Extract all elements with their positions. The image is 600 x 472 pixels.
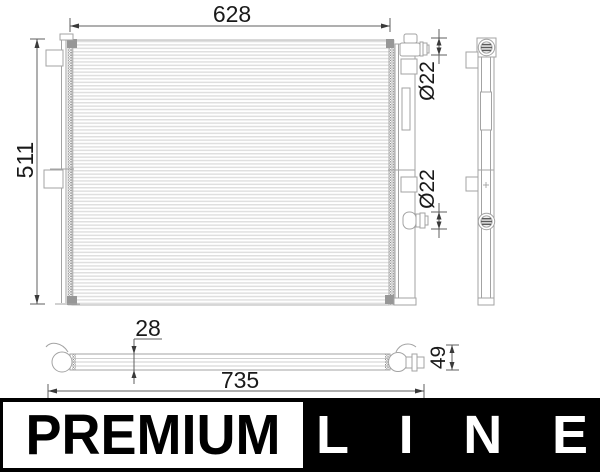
front-view: [44, 34, 429, 305]
line-letter-n: N: [463, 408, 502, 462]
line-label: L I N E: [316, 398, 588, 472]
core-right-edge: [389, 40, 394, 305]
dim-end-height-label: 49: [427, 346, 450, 369]
dim-front-height-label: 511: [12, 142, 38, 179]
mounting-bracket-mid-left: [44, 170, 63, 188]
mounting-bracket-mid-right: [401, 177, 417, 192]
side-bracket-upper: [466, 52, 478, 68]
premium-label: PREMIUM: [26, 407, 281, 464]
dim-port-top: Ø22: [416, 29, 447, 101]
radiator-core: [72, 40, 389, 305]
premium-label-box: PREMIUM: [3, 402, 303, 468]
dim-front-width: 628: [70, 1, 390, 32]
side-slot: [481, 92, 492, 130]
tank-foot: [394, 298, 416, 305]
side-port-top: [478, 39, 494, 55]
dim-front-height: 511: [12, 39, 45, 304]
dim-end-height: 49: [427, 345, 459, 370]
outlet-port-mid: [403, 212, 428, 229]
bottom-left-cap: [52, 352, 72, 372]
inlet-port-top: [400, 34, 429, 56]
line-letter-i: I: [399, 408, 414, 462]
bottom-left-dotted: [72, 355, 76, 370]
tank-slot: [402, 88, 410, 130]
dim-front-width-label: 628: [213, 1, 251, 27]
dim-port-top-label: Ø22: [416, 61, 439, 101]
mounting-bracket-upper-left: [46, 50, 63, 66]
dim-port-mid-label: Ø22: [416, 169, 439, 209]
side-bracket-lower: [466, 177, 478, 191]
bottom-right-fitting: [389, 353, 425, 372]
side-view: [466, 38, 496, 305]
technical-drawing-page: 628 511 Ø22: [0, 0, 600, 472]
line-letter-e: E: [552, 408, 588, 462]
dim-bottom-depth: 28: [132, 315, 163, 384]
bottom-right-hook: [396, 344, 416, 352]
bottom-left-hook: [46, 343, 68, 352]
side-foot: [478, 298, 494, 305]
dim-bottom-depth-label: 28: [135, 315, 161, 341]
dim-bottom-width: 735: [48, 367, 424, 398]
premium-line-banner: PREMIUM L I N E: [0, 398, 600, 472]
left-top-step: [60, 34, 73, 40]
radiator-drawing: 628 511 Ø22: [0, 0, 600, 398]
line-letter-l: L: [316, 408, 349, 462]
side-port-bottom: [478, 213, 494, 229]
mounting-bracket-upper-right: [401, 59, 417, 74]
dim-bottom-width-label: 735: [221, 367, 259, 393]
core-left-edge: [68, 40, 73, 305]
